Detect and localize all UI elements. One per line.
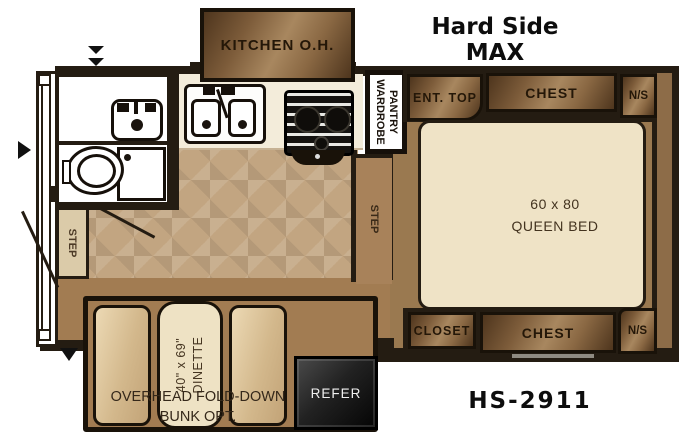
closet-label: CLOSET [414,324,471,338]
step-bedroom-label: STEP [368,179,380,259]
queen-bed: 60 x 80 QUEEN BED [418,120,646,310]
kitchen-oh-label: KITCHEN O.H. [221,37,335,54]
floorplan: KITCHEN O.H. WARDROBE PANTRY STEP [0,0,688,441]
faucet-left [117,103,129,112]
sink-drain [131,119,143,131]
sink-basin-right [228,99,256,137]
bed-type-label: QUEEN BED [512,215,599,237]
stove-base [291,150,345,165]
sink-faucet-a [203,86,215,95]
plan-title: Hard Side MAX [400,14,590,66]
chest-bottom: CHEST [480,312,616,353]
faucet-spout [134,102,138,114]
nightstand-bottom: N/S [618,308,657,354]
refer-label: REFER [311,386,362,401]
ent-top-label: ENT. TOP [413,91,477,105]
ns-top-label: N/S [629,90,648,102]
nightstand-top: N/S [620,74,657,118]
basin-right-drain [238,120,247,129]
step-bathroom: STEP [56,207,89,279]
door-hinge-bottom [38,329,51,341]
model-number: HS-2911 [455,388,605,414]
bathroom-divider [59,141,167,145]
bunk-line1: OVERHEAD FOLD-DOWN [85,388,311,408]
dinette-name-label: DINETTE [190,337,208,394]
basin-left-drain [202,120,211,129]
bunk-line2: BUNK OPT. [85,408,311,428]
wardrobe-pantry: WARDROBE PANTRY [365,70,407,154]
toilet-bowl [77,154,116,188]
closet: CLOSET [408,312,476,349]
wardrobe-label: WARDROBE [373,77,387,147]
ns-bottom-label: N/S [628,325,647,337]
stove-base-dot [315,154,320,159]
step-bedroom: STEP [356,154,392,284]
kitchen-overhead-cabinet: KITCHEN O.H. [200,8,355,82]
ent-top-cabinet: ENT. TOP [407,74,483,121]
burner-right [324,106,351,133]
bed-size-label: 60 x 80 [530,193,579,215]
sink-faucet-b [221,86,235,95]
right-wall-core [657,73,672,355]
toilet-hinge [62,160,71,184]
shower-drain [124,154,131,161]
stove [284,90,354,156]
vent-arrow-icon [88,46,104,54]
chest-top-label: CHEST [525,85,577,101]
faucet-right [145,103,156,112]
sink-basin-left [191,99,221,137]
door-hinge-top [38,74,51,86]
shower [117,147,166,201]
door-latch [50,186,57,202]
pantry-label: PANTRY [386,77,400,147]
entry-door-panel [41,82,51,337]
burner-left [294,106,321,133]
step-bathroom-label: STEP [66,211,78,275]
chest-bottom-label: CHEST [522,325,574,341]
dinette-size-label: 40" x 69" [173,338,191,392]
bunk-option-text: OVERHEAD FOLD-DOWN BUNK OPT. [85,388,311,427]
stove-knob [314,136,329,151]
chest-top: CHEST [486,73,617,112]
bottom-wall-window [512,354,594,358]
bathroom-sink [111,99,163,141]
vent-arrow-icon-2 [88,58,104,66]
entry-step-arrow-icon [60,348,78,361]
entry-arrow-icon [18,141,31,159]
